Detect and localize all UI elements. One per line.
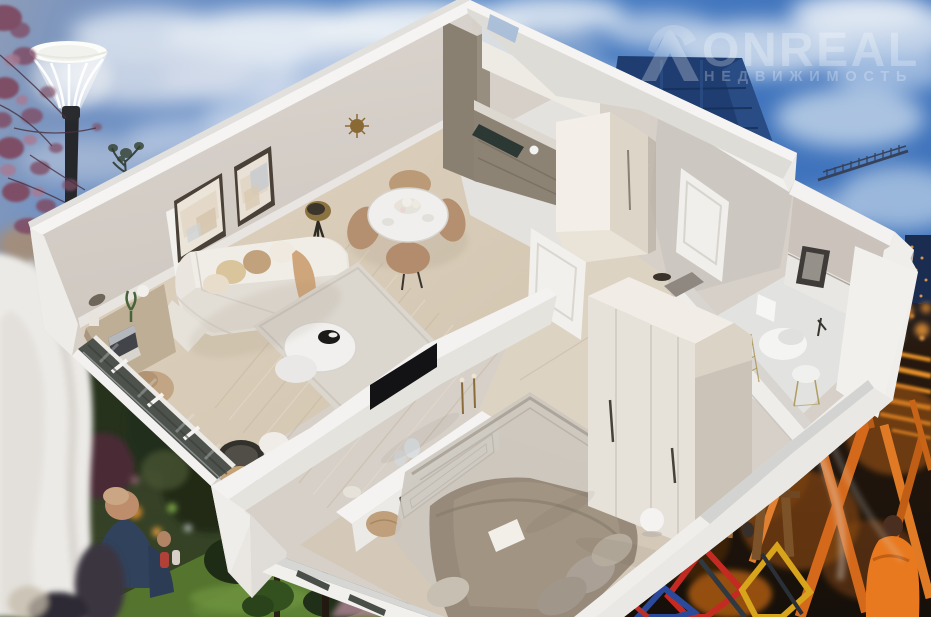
svg-text:НЕДВИЖИМОСТЬ: НЕДВИЖИМОСТЬ bbox=[704, 69, 913, 85]
